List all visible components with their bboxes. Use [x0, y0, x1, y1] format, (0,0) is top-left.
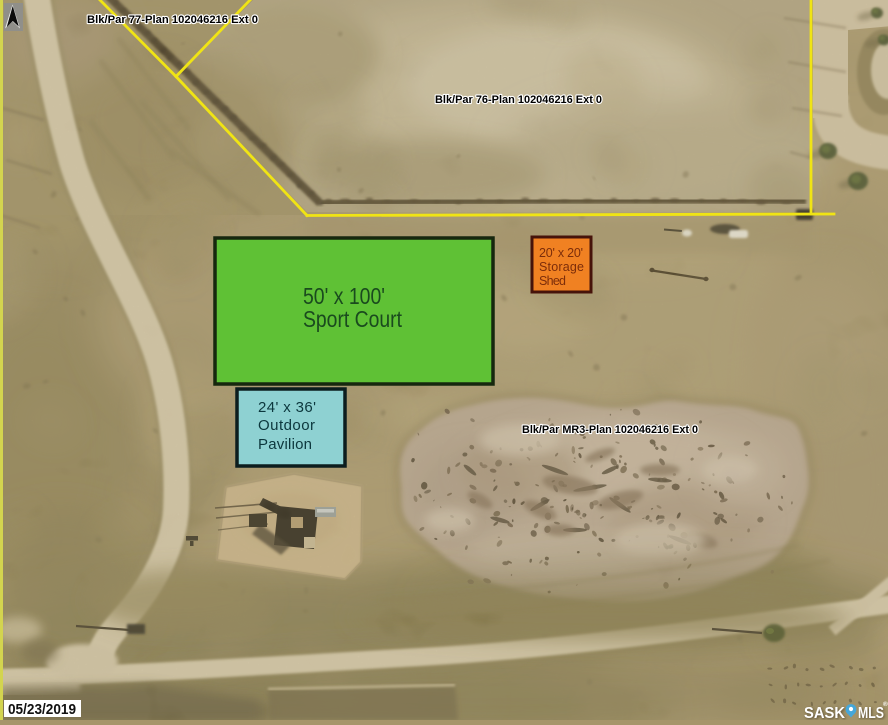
svg-text:Blk/Par MR3-Plan 102046216 Ext: Blk/Par MR3-Plan 102046216 Ext 0	[522, 424, 698, 436]
svg-text:Blk/Par 76-Plan 102046216 Ext: Blk/Par 76-Plan 102046216 Ext 0	[435, 94, 602, 106]
svg-text:Outdoor: Outdoor	[258, 417, 315, 434]
svg-text:Storage: Storage	[539, 260, 584, 274]
svg-text:20' x 20': 20' x 20'	[539, 246, 583, 260]
svg-text:SASK: SASK	[804, 705, 845, 720]
svg-text:Sport Court: Sport Court	[303, 306, 403, 332]
svg-text:Shed: Shed	[539, 274, 566, 288]
svg-text:05/23/2019: 05/23/2019	[8, 702, 76, 718]
svg-text:Pavilion: Pavilion	[258, 436, 312, 453]
svg-text:Blk/Par 77-Plan 102046216 Ext: Blk/Par 77-Plan 102046216 Ext 0	[87, 14, 258, 26]
svg-text:24' x 36': 24' x 36'	[258, 399, 316, 416]
svg-text:MLS: MLS	[858, 705, 884, 720]
svg-text:®: ®	[883, 700, 888, 708]
